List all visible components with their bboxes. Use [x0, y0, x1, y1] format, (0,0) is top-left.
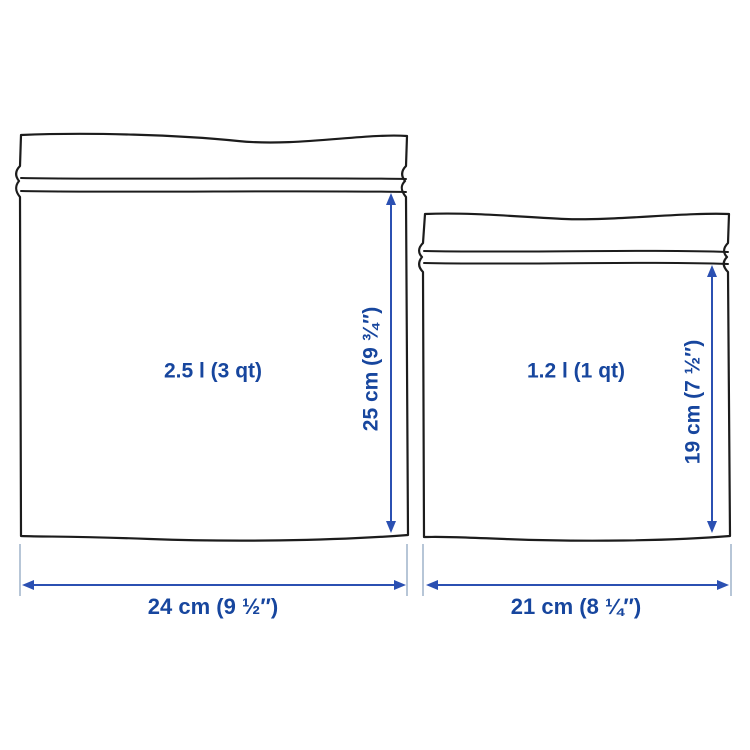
bag-dimension-diagram: 2.5 l (3 qt) 1.2 l (1 qt) 25 cm (9 ¾″) 1… [0, 0, 750, 750]
small-bag-seal-line-top [424, 251, 728, 252]
arrowhead-right [394, 580, 406, 590]
arrowhead-up [386, 193, 396, 205]
large-bag-volume-label: 2.5 l (3 qt) [164, 361, 262, 382]
arrowhead-up [707, 265, 717, 277]
large-bag-seal-line-top [21, 178, 406, 179]
arrowhead-right [717, 580, 729, 590]
small-bag-height-label: 19 cm (7 ½″) [683, 340, 704, 464]
small-bag-seal-line-bottom [424, 263, 728, 264]
extension-lines [20, 544, 731, 596]
large-bag-width-label: 24 cm (9 ½″) [148, 596, 278, 618]
large-bag-seal-line-bottom [21, 191, 406, 192]
arrowhead-down [707, 521, 717, 533]
arrowhead-down [386, 521, 396, 533]
large-bag-height-label: 25 cm (9 ¾″) [361, 307, 382, 431]
large-bag-outline [16, 134, 408, 541]
small-bag-width-label: 21 cm (8 ¼″) [511, 596, 641, 618]
arrowhead-left [22, 580, 34, 590]
arrowhead-left [426, 580, 438, 590]
small-bag-volume-label: 1.2 l (1 qt) [527, 361, 625, 382]
